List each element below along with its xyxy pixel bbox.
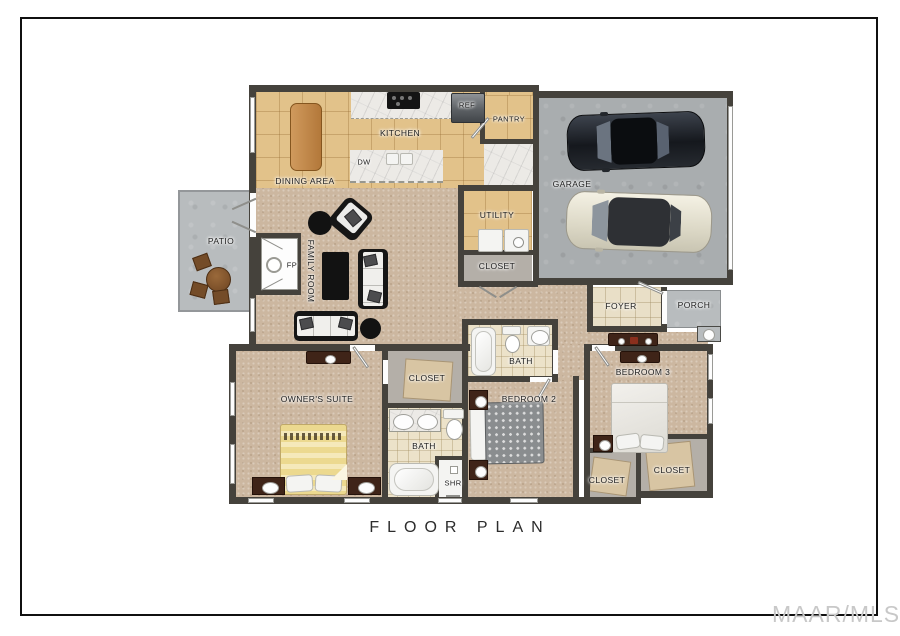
cooktop <box>387 92 420 109</box>
bathtub <box>389 463 439 496</box>
patio-chair <box>212 289 230 305</box>
window <box>708 354 713 380</box>
wall-segment <box>384 403 468 408</box>
wall-segment <box>587 281 593 332</box>
window <box>230 444 235 484</box>
bedroom3-bed <box>611 383 668 453</box>
wall-segment <box>464 319 558 325</box>
wall-segment <box>533 91 733 98</box>
mls-watermark: MAAR/MLS <box>772 601 900 628</box>
dining-table <box>290 103 322 171</box>
walkin-door-opening <box>383 360 388 384</box>
window <box>250 97 255 153</box>
car-dark <box>566 111 706 172</box>
owners-suite-label: OWNER'S SUITE <box>281 394 353 404</box>
hall-floor-d <box>556 344 586 380</box>
bedroom2-label: BEDROOM 2 <box>502 394 557 404</box>
kitchen-island <box>350 150 443 183</box>
garage-door <box>728 106 733 270</box>
wall-segment <box>587 326 667 332</box>
foyer-label: FOYER <box>605 301 636 311</box>
porch-label: PORCH <box>678 300 711 310</box>
bedroom3-label: BEDROOM 3 <box>616 367 671 377</box>
vanity-double-sink <box>389 409 441 432</box>
sofa-bottom <box>294 311 358 341</box>
fireplace-label: FP <box>287 261 297 270</box>
floor-plan-canvas: REF DW <box>0 0 900 636</box>
walkin-closet-label: CLOSET <box>409 373 445 383</box>
side-table <box>308 211 332 235</box>
window <box>230 382 235 416</box>
side-table <box>360 318 381 339</box>
wall-segment <box>458 185 538 191</box>
bedroom2-bed <box>469 401 544 464</box>
garage-label: GARAGE <box>553 179 592 189</box>
nightstand <box>252 477 285 495</box>
bathtub <box>471 327 496 376</box>
pantry-passage-floor <box>484 143 533 188</box>
hall-bath-label: BATH <box>509 356 533 366</box>
nightstand <box>593 435 613 452</box>
utility-closet-label: CLOSET <box>479 261 515 271</box>
window <box>344 498 370 503</box>
shower-head <box>450 466 458 474</box>
wall-segment <box>638 491 713 498</box>
patio-label: PATIO <box>208 236 234 246</box>
shower-label: SHR <box>444 479 461 488</box>
console-table <box>608 333 658 346</box>
dresser <box>620 351 660 363</box>
porch-light <box>703 329 715 341</box>
washer <box>478 229 503 252</box>
refrigerator-label: REF <box>459 101 475 110</box>
wall-segment <box>481 139 534 144</box>
nightstand <box>348 477 381 495</box>
window <box>708 398 713 424</box>
wall-segment <box>249 85 539 92</box>
wall-segment <box>573 376 579 504</box>
wall-segment <box>435 456 468 460</box>
wall-segment <box>533 91 539 285</box>
window <box>250 298 255 332</box>
utility-label: UTILITY <box>480 210 514 220</box>
sofa-right <box>358 249 388 309</box>
hall-bath-door-opening <box>553 350 558 374</box>
dresser <box>306 351 351 364</box>
closet-a-label: CLOSET <box>589 475 625 485</box>
front-door-opening <box>662 291 667 324</box>
nightstand <box>469 460 488 480</box>
family-room-label: FAMILY ROOM <box>306 240 316 303</box>
owners-bed <box>280 424 347 495</box>
sink <box>527 326 550 346</box>
toilet <box>502 326 521 352</box>
nightstand <box>469 390 488 410</box>
pantry-label: PANTRY <box>493 115 525 124</box>
dishwasher-label: DW <box>357 158 370 167</box>
toilet <box>443 409 464 439</box>
shower-door <box>446 495 460 497</box>
wall-segment <box>533 278 733 285</box>
window <box>248 498 274 503</box>
coffee-table <box>322 252 349 300</box>
owners-bath-label: BATH <box>412 441 436 451</box>
closet-b-label: CLOSET <box>654 465 690 475</box>
wall-segment <box>458 281 538 287</box>
dining-label: DINING AREA <box>275 176 334 186</box>
wall-segment <box>458 185 464 287</box>
floor-plan-title: FLOOR PLAN <box>369 519 550 537</box>
kitchen-label: KITCHEN <box>380 128 420 138</box>
dryer <box>504 229 529 252</box>
window <box>510 498 538 503</box>
window <box>438 498 462 503</box>
car-light <box>565 190 713 253</box>
